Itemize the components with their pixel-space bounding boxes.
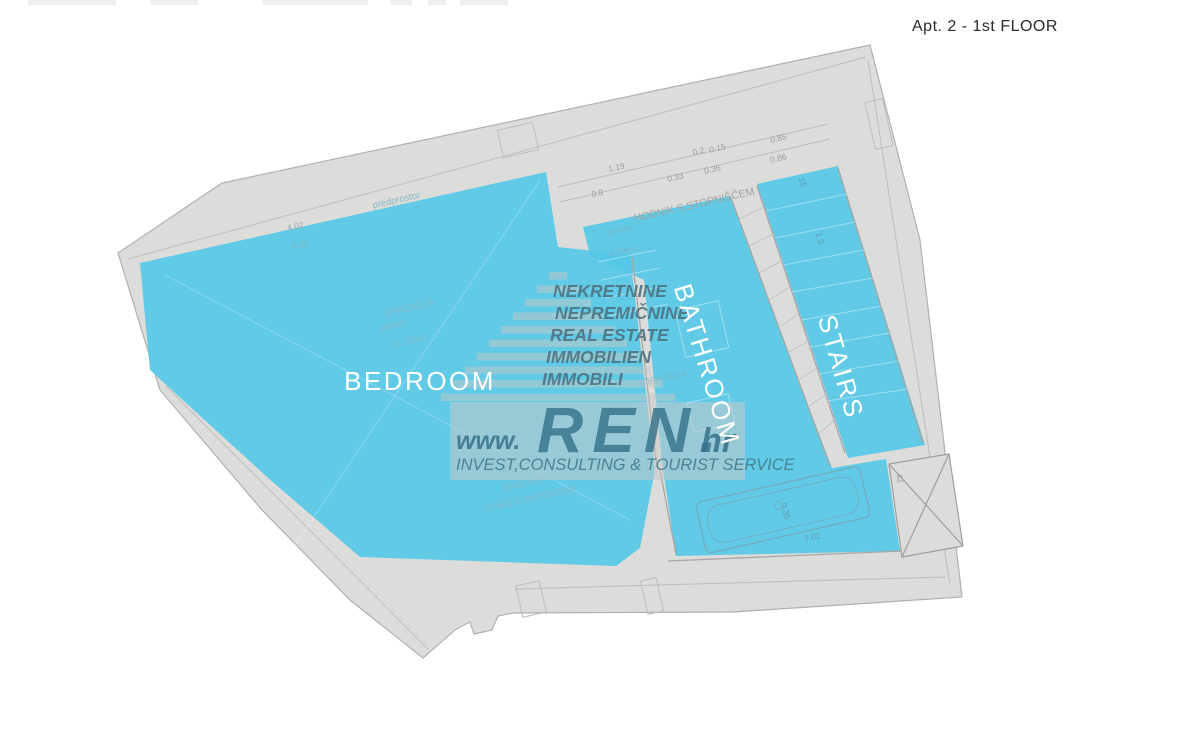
floorplan-image: predprostor SPALNICA parket 11.23m2 HODN…	[0, 0, 1200, 734]
watermark-tagline: INVEST,CONSULTING & TOURIST SERVICE	[456, 456, 796, 474]
watermark-lang-4: IMMOBILIEN	[546, 347, 651, 367]
watermark-lang-2: NEPREMIČNINE	[555, 302, 691, 323]
floorplan-page: predprostor SPALNICA parket 11.23m2 HODN…	[0, 0, 1200, 734]
watermark-lang-1: NEKRETNINE	[553, 281, 668, 301]
watermark-www: www.	[456, 427, 520, 455]
bedroom-label: BEDROOM	[344, 366, 496, 396]
top-edge-cropped-marks	[28, 0, 508, 5]
page-title: Apt. 2 - 1st FLOOR	[912, 18, 1192, 58]
shaft-box	[889, 454, 963, 557]
watermark-lang-5: IMMOBILI	[542, 369, 624, 389]
watermark-lang-3: REAL ESTATE	[550, 325, 670, 345]
